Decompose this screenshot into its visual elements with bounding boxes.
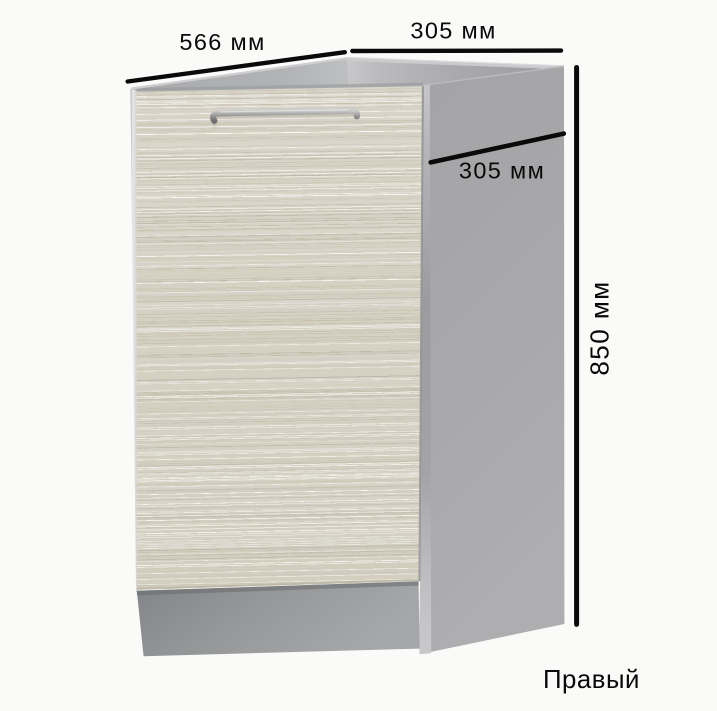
svg-text:566 мм: 566 мм xyxy=(179,29,265,55)
svg-text:305 мм: 305 мм xyxy=(459,158,545,184)
svg-text:Правый: Правый xyxy=(543,666,640,694)
svg-text:305 мм: 305 мм xyxy=(410,17,496,43)
svg-text:850 мм: 850 мм xyxy=(585,280,615,375)
